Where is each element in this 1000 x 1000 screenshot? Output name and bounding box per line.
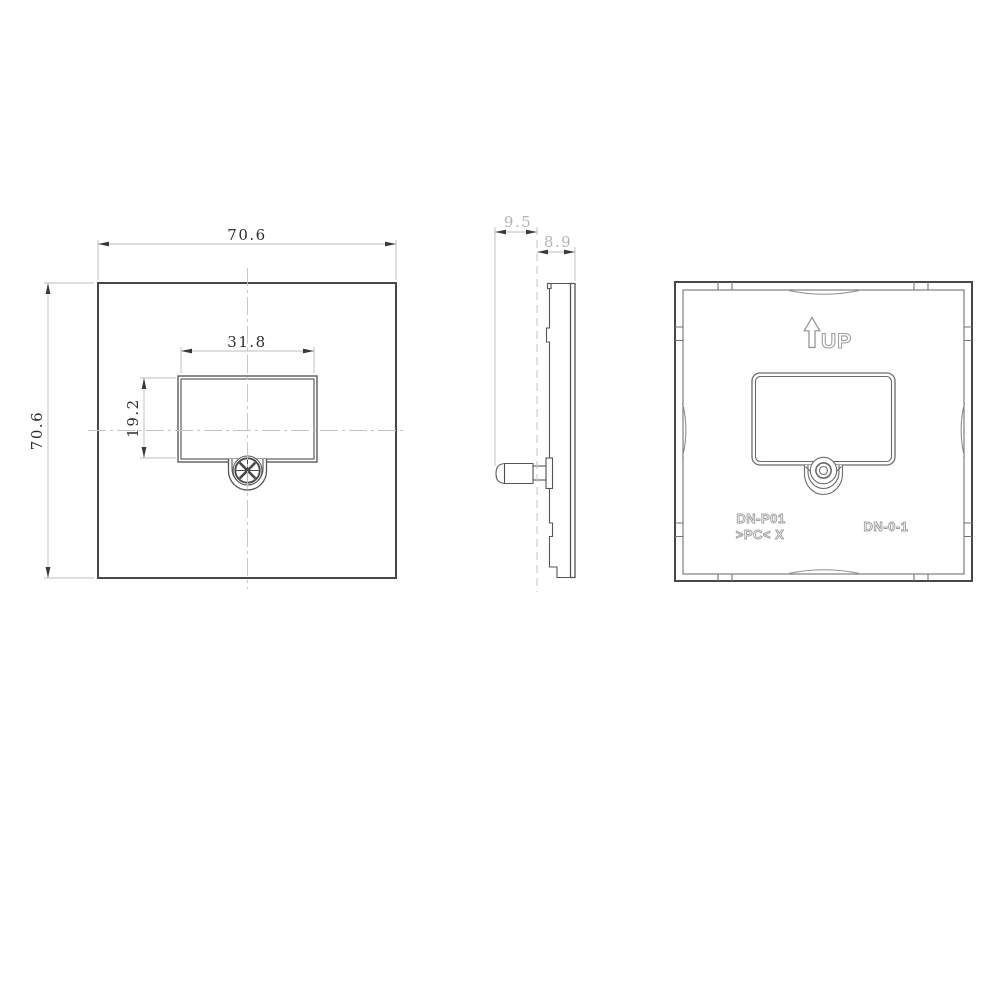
dim-opening-height: 19.2 [124, 378, 176, 458]
screw-barrel [496, 464, 533, 484]
dim-body-depth-value: 8.9 [544, 233, 572, 251]
up-arrow-icon [804, 318, 820, 348]
dim-front-width-value: 70.6 [227, 226, 266, 244]
dim-overall-depth-value: 9.5 [504, 213, 532, 231]
arrowhead-icon [98, 242, 109, 247]
back-screw-boss [805, 457, 843, 494]
dim-body-depth: 8.9 [537, 233, 575, 281]
back-opening-frame-inner [756, 377, 892, 462]
dim-opening-width-value: 31.8 [227, 333, 266, 351]
dim-lines [140, 378, 176, 458]
boss-screw-hole [820, 467, 828, 475]
wall-plate-technical-drawing: 70.6 70.6 31.8 19.2 [0, 0, 1000, 1000]
dim-lines [495, 227, 537, 466]
dim-lines [44, 283, 94, 578]
arrowhead-icon [181, 349, 192, 354]
drawing-sheet: 70.6 70.6 31.8 19.2 [0, 0, 1000, 1000]
up-label: UP [821, 330, 852, 353]
screw-shaft [533, 466, 546, 480]
back-plate-outline [675, 282, 972, 581]
marking-model: DN-P01 [736, 511, 785, 526]
side-body-profile [547, 284, 571, 578]
arrowhead-icon [46, 567, 51, 578]
dim-opening-height-value: 19.2 [124, 398, 142, 437]
dim-front-width: 70.6 [98, 226, 396, 280]
arrowhead-icon [303, 349, 314, 354]
back-view: UP DN-P01 >PC< X DN-0-1 [675, 282, 972, 581]
side-screw-icon [496, 458, 553, 489]
side-top-clip [548, 284, 552, 289]
arrowhead-icon [46, 283, 51, 294]
side-faceplate [571, 284, 576, 578]
back-clip-arc-bottom [789, 570, 859, 574]
front-view: 70.6 70.6 31.8 19.2 [28, 226, 404, 589]
back-opening-frame-outer [752, 373, 895, 465]
dim-lines [98, 240, 396, 280]
marking-code: DN-0-1 [864, 519, 909, 534]
marking-material: >PC< X [736, 527, 785, 542]
dim-front-height: 70.6 [28, 283, 94, 578]
dim-overall-depth: 9.5 [495, 213, 537, 466]
dim-front-height-value: 70.6 [28, 411, 46, 450]
arrowhead-icon [385, 242, 396, 247]
side-view: 9.5 8.9 [495, 213, 575, 592]
back-clip-arc-top [789, 291, 859, 295]
back-edge-notches [675, 282, 972, 581]
arrowhead-icon [142, 447, 147, 458]
arrowhead-icon [142, 378, 147, 389]
screw-flange [546, 458, 553, 489]
